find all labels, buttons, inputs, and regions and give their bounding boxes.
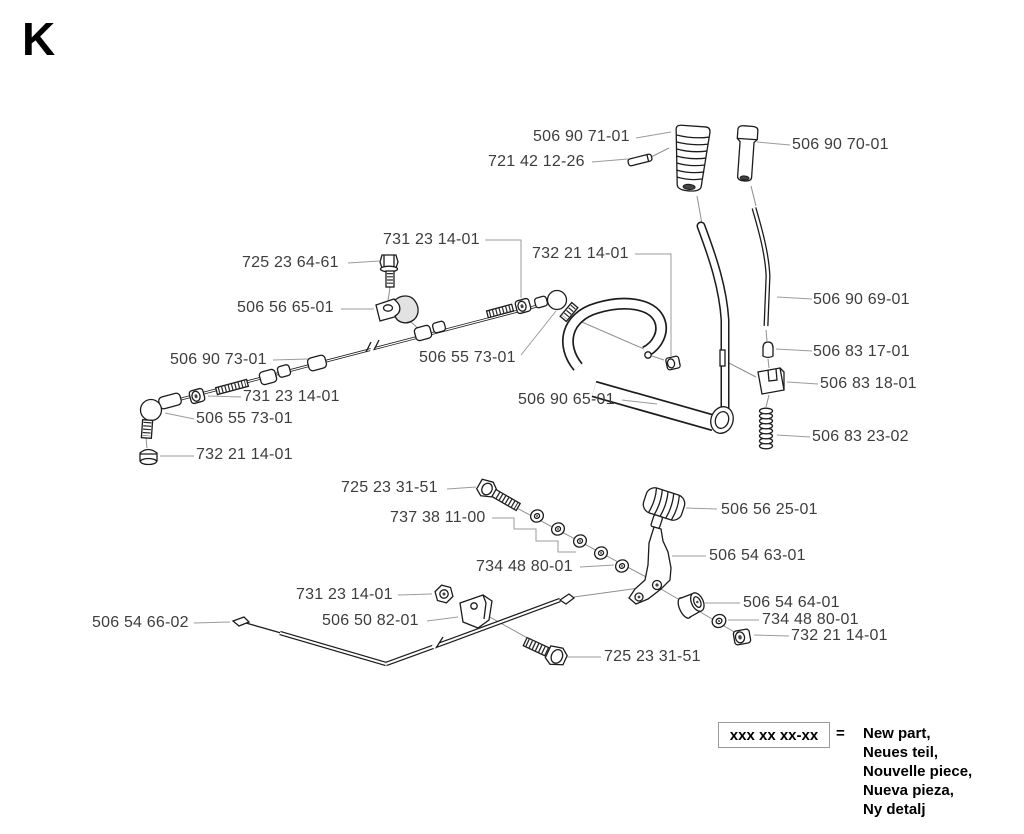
- tube-loop: [568, 304, 661, 367]
- part-label-506-54-66-02: 506 54 66-02: [92, 615, 189, 631]
- nut-bottom-left: [434, 583, 454, 605]
- legend-pattern-box: xxx xx xx-xx: [718, 722, 830, 748]
- cable-nut-left: [189, 388, 206, 404]
- leader-line: [194, 622, 230, 623]
- part-label-506-56-25-01: 506 56 25-01: [721, 502, 818, 518]
- part-label-731-23-14-01: 731 23 14-01: [383, 232, 480, 248]
- cable-nut-right: [515, 298, 532, 314]
- part-label-725-23-31-51: 725 23 31-51: [341, 480, 438, 496]
- rod-clip: [460, 595, 492, 628]
- leader-line: [686, 508, 717, 509]
- leader-line: [447, 487, 476, 489]
- knob-handle: [734, 125, 758, 181]
- grip-handle: [672, 125, 710, 192]
- leader-line: [485, 240, 521, 298]
- roller: [675, 590, 707, 620]
- spring: [760, 408, 773, 449]
- leader-line: [165, 413, 194, 419]
- legend-equals: =: [836, 725, 845, 742]
- part-label-721-42-12-26: 721 42 12-26: [488, 154, 585, 170]
- leader-line: [592, 159, 628, 162]
- leader-line: [580, 565, 614, 567]
- adjuster-knob: [637, 485, 687, 534]
- part-label-732-21-14-01: 732 21 14-01: [791, 628, 888, 644]
- leader-line: [777, 297, 812, 299]
- leader-line: [398, 594, 432, 595]
- legend-line-de: Neues teil,: [863, 743, 972, 762]
- leader-line: [777, 435, 810, 437]
- locking-pin: [628, 154, 653, 167]
- gear-lever-rod: [701, 226, 725, 414]
- part-label-725-23-64-61: 725 23 64-61: [242, 255, 339, 271]
- leader-line: [757, 142, 790, 145]
- lever-bracket: [629, 527, 671, 604]
- tube-end-opening: [707, 404, 736, 436]
- part-label-506-56-65-01: 506 56 65-01: [237, 300, 334, 316]
- legend-line-sv: Ny detalj: [863, 800, 972, 819]
- leader-line: [348, 261, 379, 263]
- part-label-506-83-23-02: 506 83 23-02: [812, 429, 909, 445]
- loop-nut: [665, 356, 680, 370]
- leader-line: [776, 349, 812, 351]
- leader-line: [273, 359, 308, 360]
- part-label-506-83-18-01: 506 83 18-01: [820, 376, 917, 392]
- cable-clamp: [376, 296, 418, 323]
- bolt-lower: [521, 633, 569, 670]
- leader-line: [787, 382, 818, 384]
- part-label-506-55-73-01: 506 55 73-01: [419, 350, 516, 366]
- parts-diagram-page: K: [0, 0, 1024, 834]
- part-label-506-54-63-01: 506 54 63-01: [709, 548, 806, 564]
- leader-line: [521, 311, 556, 355]
- part-label-506-83-17-01: 506 83 17-01: [813, 344, 910, 360]
- part-label-506-55-73-01: 506 55 73-01: [196, 411, 293, 427]
- leader-line: [427, 617, 458, 621]
- part-label-506-54-64-01: 506 54 64-01: [743, 595, 840, 611]
- legend-line-en: New part,: [863, 724, 972, 743]
- leader-line: [208, 396, 241, 397]
- control-rod-long: [233, 594, 574, 664]
- assembly-lines: [146, 148, 769, 649]
- leader-line: [492, 518, 576, 552]
- cap-nut: [140, 450, 157, 465]
- square-clip: [758, 368, 784, 394]
- legend-line-es: Nueva pieza,: [863, 781, 972, 800]
- leader-line: [754, 635, 789, 636]
- part-label-732-21-14-01: 732 21 14-01: [196, 447, 293, 463]
- part-label-731-23-14-01: 731 23 14-01: [296, 587, 393, 603]
- exploded-parts-drawing: [0, 0, 1024, 834]
- part-label-737-38-11-00: 737 38 11-00: [390, 510, 486, 526]
- part-label-506-90-73-01: 506 90 73-01: [170, 352, 267, 368]
- part-label-725-23-31-51: 725 23 31-51: [604, 649, 701, 665]
- leader-line: [636, 132, 671, 138]
- part-label-734-48-80-01: 734 48 80-01: [762, 612, 859, 628]
- part-label-506-90-70-01: 506 90 70-01: [792, 137, 889, 153]
- part-label-506-90-69-01: 506 90 69-01: [813, 292, 910, 308]
- part-label-506-90-65-01: 506 90 65-01: [518, 392, 615, 408]
- cap-ferrule: [763, 342, 773, 358]
- part-label-734-48-80-01: 734 48 80-01: [476, 559, 573, 575]
- nut-right: [733, 629, 751, 646]
- control-rod-right: [754, 208, 768, 326]
- part-label-506-90-71-01: 506 90 71-01: [533, 129, 630, 145]
- clamp-bolt: [380, 255, 398, 287]
- part-label-506-50-82-01: 506 50 82-01: [322, 613, 419, 629]
- legend-translations: New part, Neues teil, Nouvelle piece, Nu…: [863, 724, 972, 819]
- part-label-732-21-14-01: 732 21 14-01: [532, 246, 629, 262]
- legend-line-fr: Nouvelle piece,: [863, 762, 972, 781]
- part-label-731-23-14-01: 731 23 14-01: [243, 389, 340, 405]
